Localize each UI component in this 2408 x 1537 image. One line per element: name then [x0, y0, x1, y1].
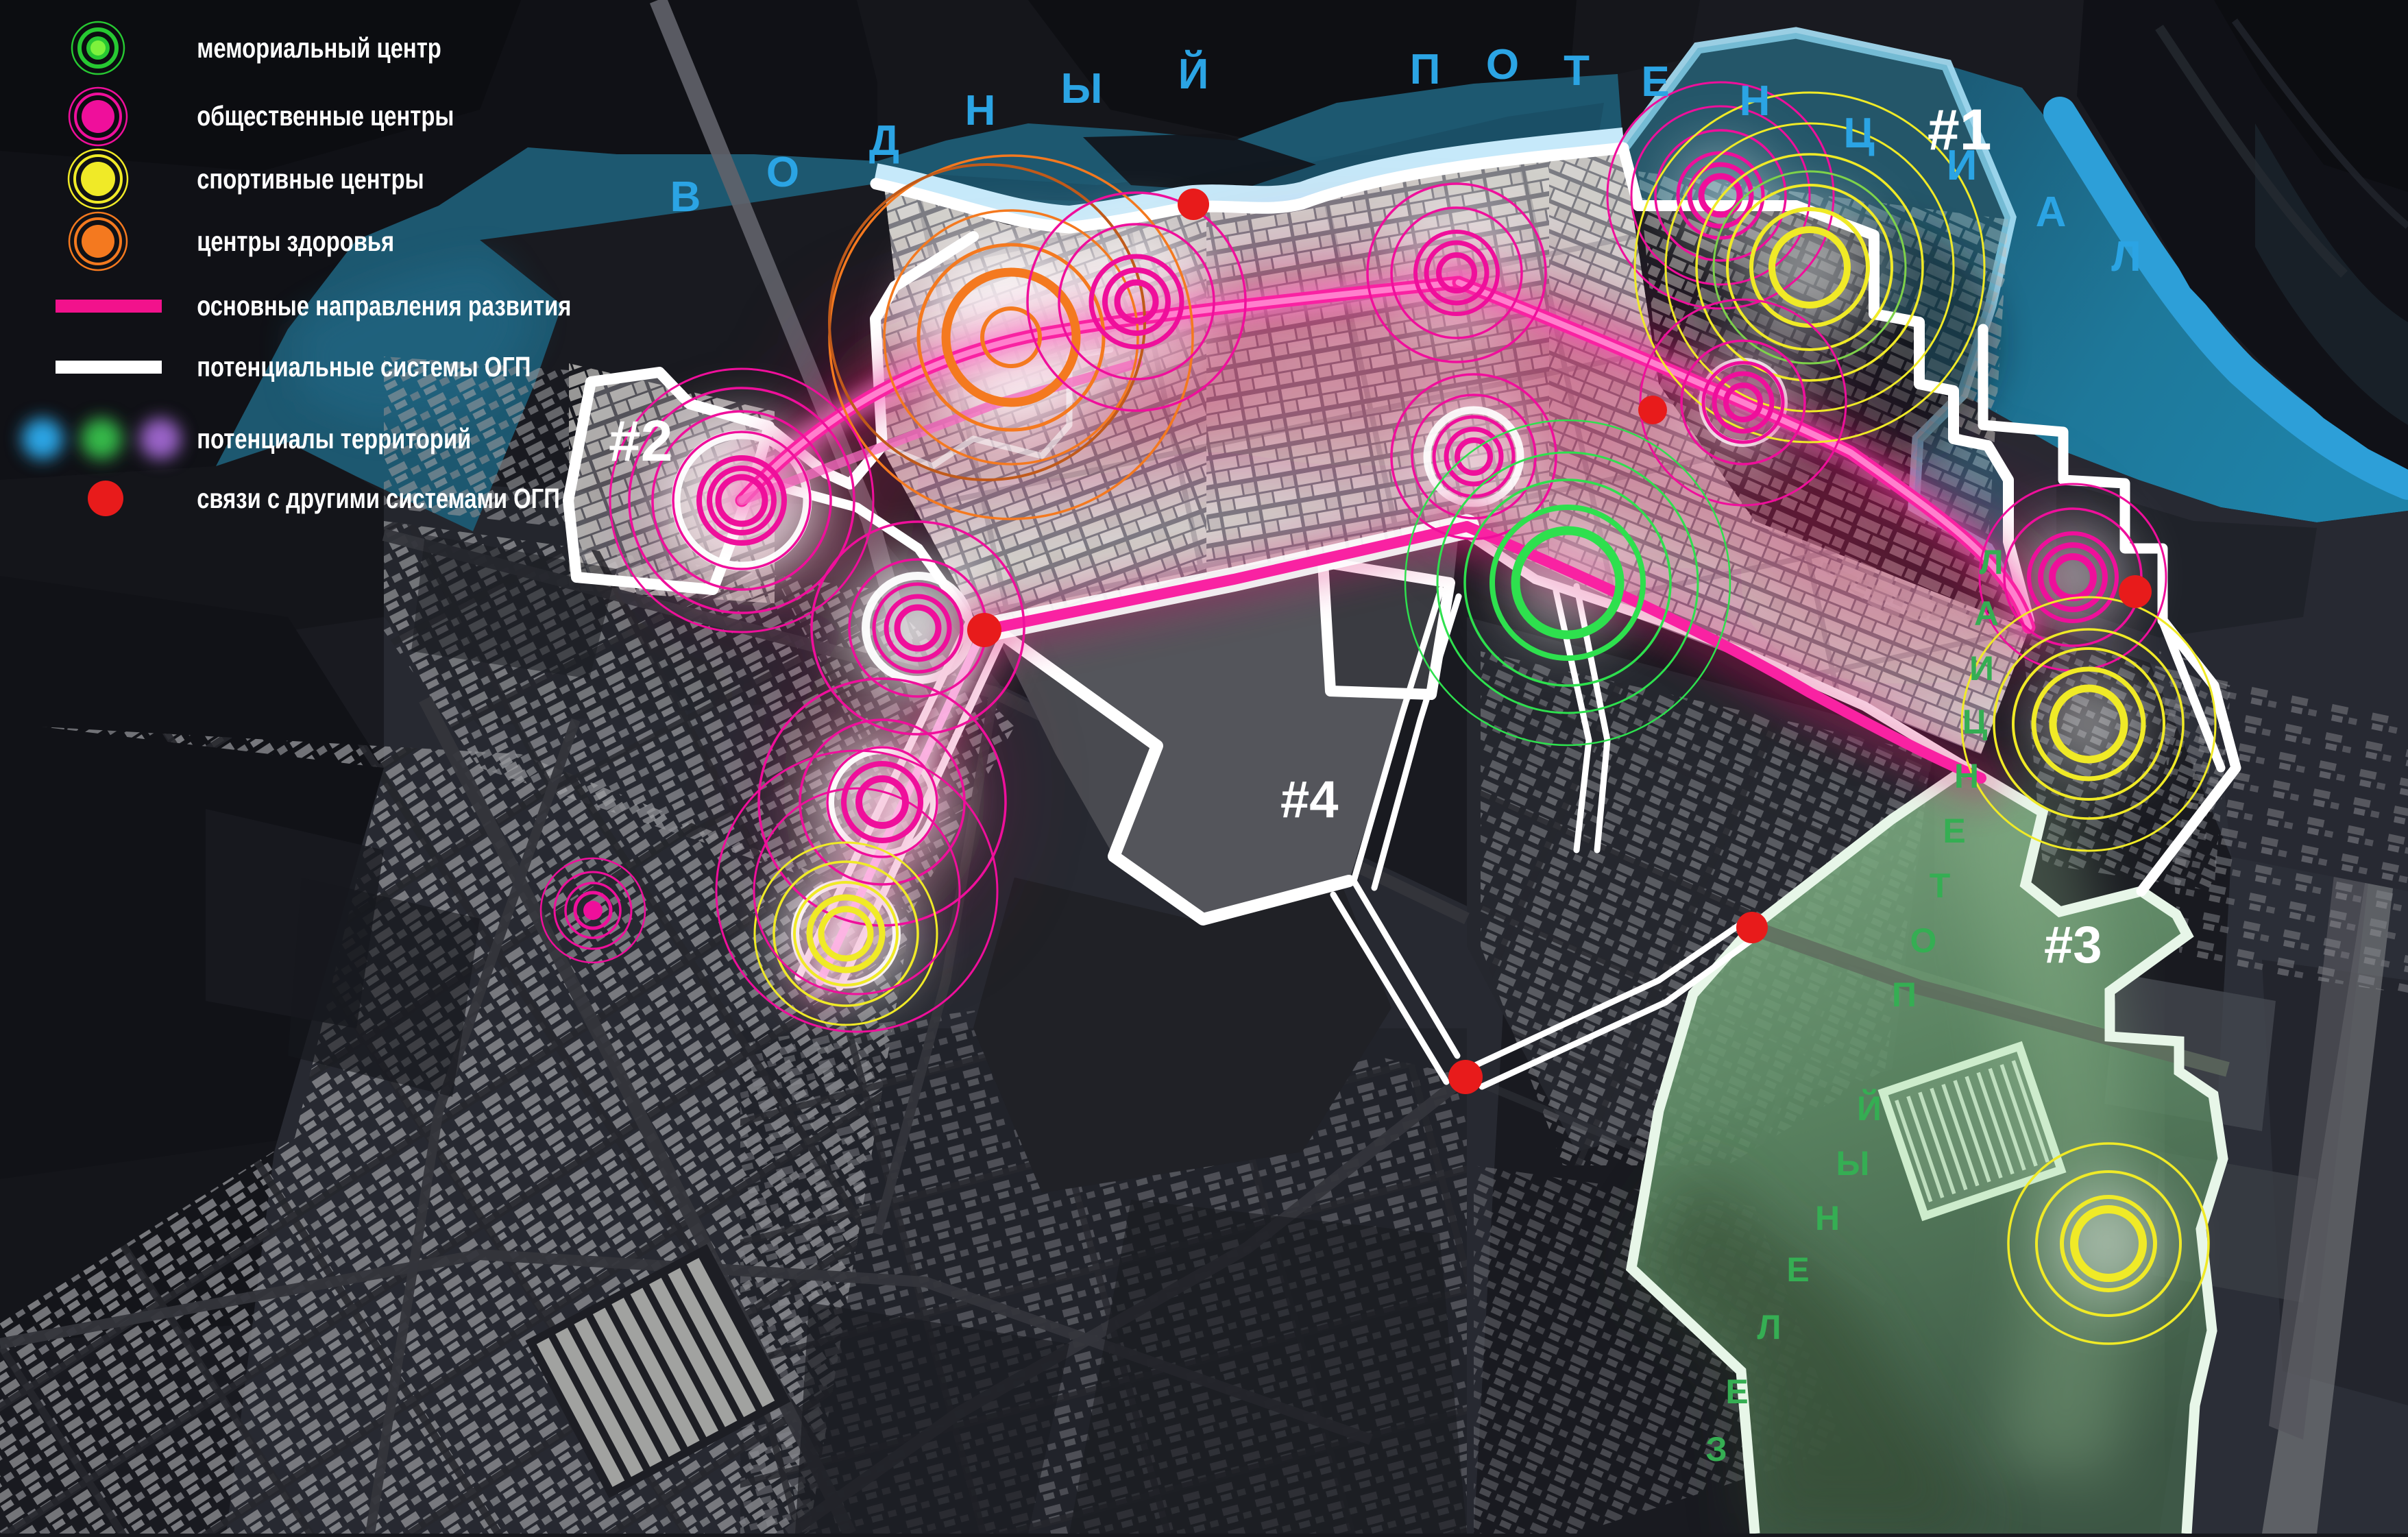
svg-text:связи с другими системами ОГП: связи с другими системами ОГП — [197, 482, 560, 513]
svg-text:Д: Д — [869, 117, 899, 165]
svg-text:Е: Е — [1725, 1372, 1748, 1411]
svg-text:А: А — [2036, 189, 2067, 236]
svg-text:Й: Й — [1857, 1089, 1882, 1128]
svg-text:Ы: Ы — [1836, 1144, 1870, 1183]
svg-text:И: И — [1969, 649, 1994, 688]
svg-text:Л: Л — [1757, 1308, 1781, 1346]
svg-text:Н: Н — [1740, 77, 1771, 125]
svg-text:Н: Н — [965, 87, 996, 134]
svg-text:#3: #3 — [2044, 916, 2102, 974]
svg-text:Й: Й — [1178, 50, 1209, 98]
svg-text:З: З — [1705, 1430, 1727, 1468]
svg-text:центры здоровья: центры здоровья — [197, 225, 394, 256]
svg-text:спортивные центры: спортивные центры — [197, 162, 424, 194]
svg-text:потенциалы территорий: потенциалы территорий — [197, 422, 471, 454]
svg-text:В: В — [670, 173, 701, 221]
svg-text:Н: Н — [1954, 757, 1979, 795]
svg-text:А: А — [1974, 594, 1999, 633]
svg-text:Е: Е — [1943, 812, 1965, 850]
svg-text:потенциальные системы ОГП: потенциальные системы ОГП — [197, 350, 531, 382]
svg-text:общественные центры: общественные центры — [197, 99, 454, 131]
svg-text:Е: Е — [1641, 58, 1669, 106]
svg-text:Л: Л — [1979, 543, 2003, 581]
svg-text:#4: #4 — [1280, 771, 1339, 829]
svg-text:О: О — [1486, 41, 1519, 88]
svg-text:Ы: Ы — [1061, 65, 1103, 112]
svg-text:#2: #2 — [609, 409, 672, 473]
svg-text:Ц: Ц — [1843, 110, 1874, 157]
svg-text:Ц: Ц — [1962, 703, 1988, 741]
svg-text:Т: Т — [1930, 867, 1951, 905]
svg-text:П: П — [1892, 976, 1917, 1014]
svg-text:Т: Т — [1564, 47, 1590, 95]
svg-text:основные направления развития: основные направления развития — [197, 289, 571, 321]
svg-text:О: О — [766, 149, 799, 196]
svg-text:О: О — [1910, 921, 1937, 960]
svg-text:Н: Н — [1815, 1199, 1840, 1237]
svg-text:Л: Л — [2111, 233, 2141, 280]
svg-text:Е: Е — [1786, 1250, 1809, 1289]
svg-text:#1: #1 — [1927, 97, 1991, 162]
svg-text:мемориальный центр: мемориальный центр — [197, 32, 441, 63]
svg-text:П: П — [1410, 46, 1441, 93]
